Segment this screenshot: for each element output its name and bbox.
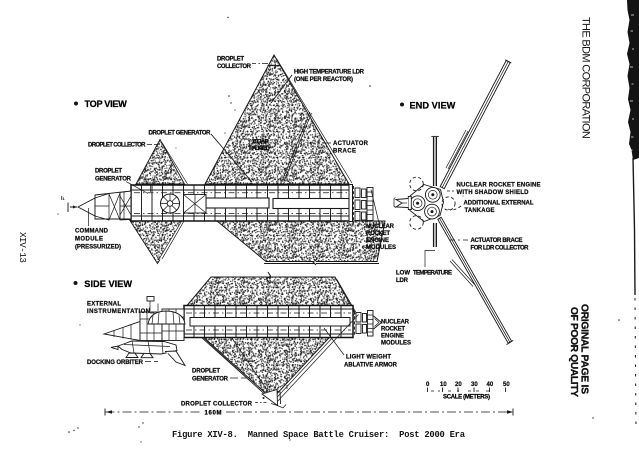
svg-text:TOP VIEW: TOP VIEW xyxy=(85,99,128,109)
svg-text:MODULES: MODULES xyxy=(381,341,411,347)
svg-text:DOCKING ORBITER: DOCKING ORBITER xyxy=(87,360,144,366)
svg-text:COLLECTOR: COLLECTOR xyxy=(217,64,252,70)
svg-text:NUCLEAR: NUCLEAR xyxy=(381,320,410,326)
svg-text:50: 50 xyxy=(503,382,510,388)
svg-text:RADIATED: RADIATED xyxy=(249,146,271,152)
svg-text:ROCKET: ROCKET xyxy=(381,327,405,333)
svg-text:10: 10 xyxy=(440,382,447,388)
svg-text:DROPLET: DROPLET xyxy=(217,57,244,63)
svg-text:DROPLET: DROPLET xyxy=(95,169,122,175)
svg-text:SIDE VIEW: SIDE VIEW xyxy=(84,279,132,289)
svg-text:LOW: LOW xyxy=(396,271,410,277)
svg-text:EXTERNAL: EXTERNAL xyxy=(87,302,121,308)
svg-text:ADDITIONAL EXTERNAL: ADDITIONAL EXTERNAL xyxy=(464,201,534,207)
svg-text:FOR LDR COLLECTOR: FOR LDR COLLECTOR xyxy=(471,246,530,252)
svg-text:XIV-13: XIV-13 xyxy=(17,232,28,263)
svg-text:ABLATIVE ARMOR: ABLATIVE ARMOR xyxy=(344,363,398,369)
svg-text:SCALE (METERS): SCALE (METERS) xyxy=(443,395,490,401)
svg-text:MODULE: MODULE xyxy=(75,237,103,243)
svg-text:ACTUATOR: ACTUATOR xyxy=(333,141,369,147)
svg-text:160M: 160M xyxy=(205,411,222,417)
svg-text:NUCLEAR ROCKET ENGINE: NUCLEAR ROCKET ENGINE xyxy=(457,183,541,189)
svg-text:THE BDM CORPORATION: THE BDM CORPORATION xyxy=(580,17,592,139)
svg-text:Figure XIV-8. Manned Space Ba: Figure XIV-8. Manned Space Battle Cruise… xyxy=(172,430,466,440)
svg-text:INSTRUMENTATION: INSTRUMENTATION xyxy=(87,309,150,315)
svg-text:MODULES: MODULES xyxy=(366,245,396,251)
svg-text:END VIEW: END VIEW xyxy=(410,101,456,111)
svg-text:DROPLET GENERATOR: DROPLET GENERATOR xyxy=(149,131,212,137)
svg-text:LIGHT WEIGHT: LIGHT WEIGHT xyxy=(346,355,391,361)
svg-text:TEMPERATURE: TEMPERATURE xyxy=(413,271,452,277)
svg-text:LDR: LDR xyxy=(396,278,409,284)
svg-text:20: 20 xyxy=(455,382,462,388)
svg-text:BRACE: BRACE xyxy=(333,149,356,155)
svg-text:GENERATOR: GENERATOR xyxy=(192,377,229,383)
svg-text:(PRESSURIZED): (PRESSURIZED) xyxy=(75,245,121,251)
svg-text:ROCKET: ROCKET xyxy=(366,231,390,237)
svg-text:100GW IR: 100GW IR xyxy=(252,140,270,146)
svg-text:DROPLET COLLECTOR: DROPLET COLLECTOR xyxy=(181,402,253,408)
svg-text:OF POOR QUALITY: OF POOR QUALITY xyxy=(568,307,579,397)
svg-text:NUCLEAR: NUCLEAR xyxy=(366,224,395,230)
svg-text:(ONE PER REACTOR): (ONE PER REACTOR) xyxy=(294,77,353,83)
svg-text:DROPLET: DROPLET xyxy=(192,369,220,375)
svg-text:ENGINE: ENGINE xyxy=(381,334,404,340)
svg-text:WITH SHADOW SHIELD: WITH SHADOW SHIELD xyxy=(457,190,530,196)
svg-text:TANKAGE: TANKAGE xyxy=(465,208,495,214)
svg-text:DROPLET COLLECTOR: DROPLET COLLECTOR xyxy=(88,143,146,149)
svg-text:HIGH TEMPERATURE LDR: HIGH TEMPERATURE LDR xyxy=(294,70,365,76)
svg-text:ENGINE: ENGINE xyxy=(366,238,389,244)
svg-text:COMMAND: COMMAND xyxy=(75,229,109,235)
svg-text:30: 30 xyxy=(471,382,478,388)
svg-text:ORIGINAL PAGE IS: ORIGINAL PAGE IS xyxy=(579,304,590,394)
svg-text:40: 40 xyxy=(487,382,494,388)
svg-text:ACTUATOR BRACE: ACTUATOR BRACE xyxy=(471,238,523,244)
